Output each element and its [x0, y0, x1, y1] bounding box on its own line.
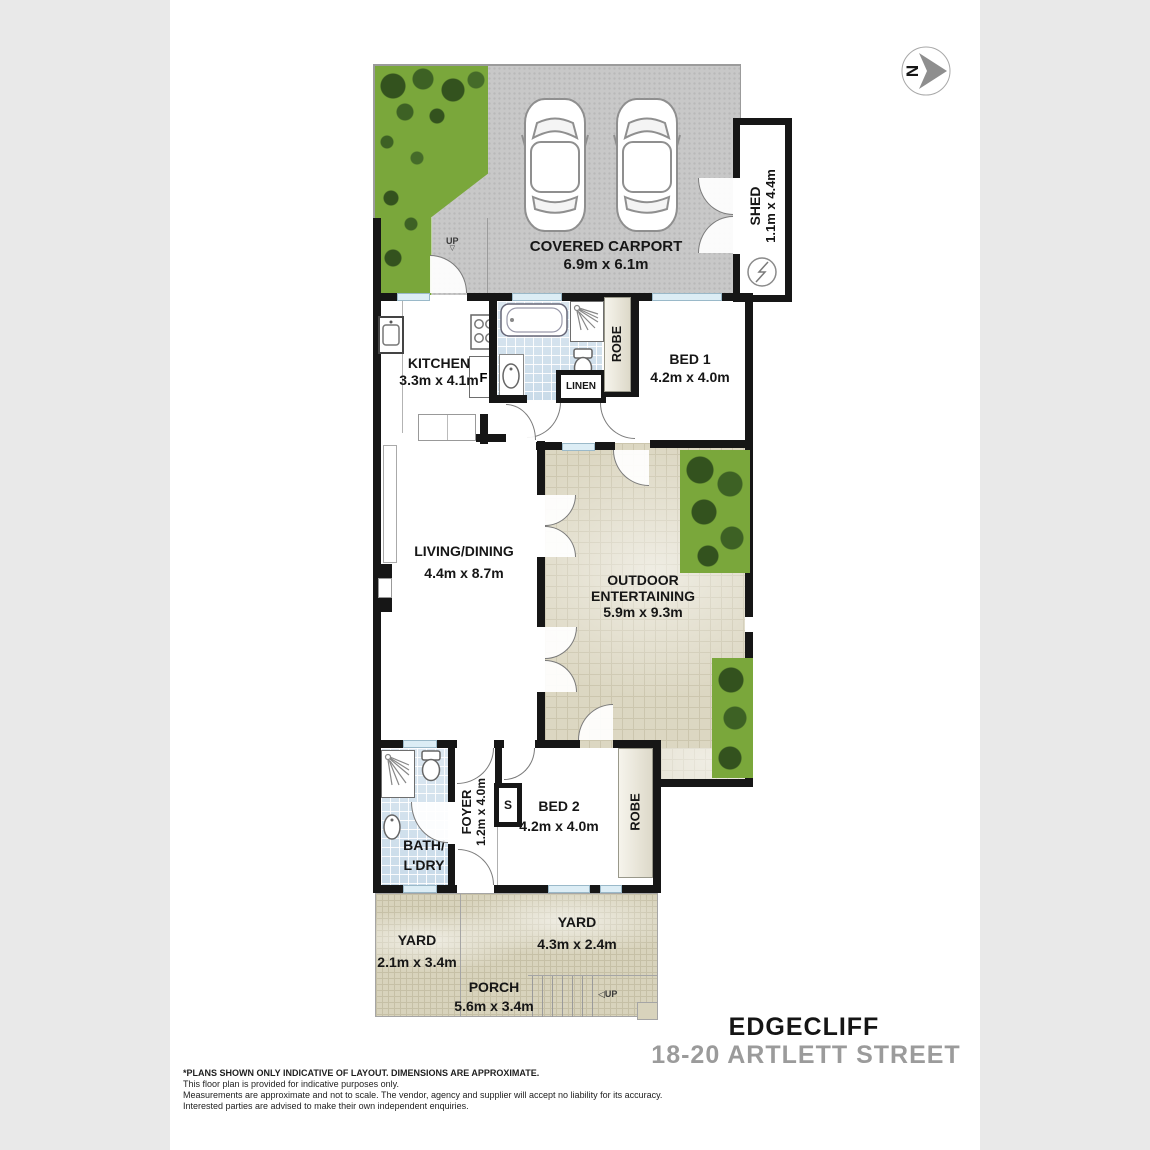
room-label-robe2: ROBE — [628, 793, 643, 831]
room-label-outdoor: OUTDOOR ENTERTAINING 5.9m x 9.3m — [591, 572, 695, 620]
meter-icon — [746, 256, 778, 288]
wall-segment — [537, 692, 545, 743]
builtin-cupboard — [383, 445, 397, 563]
wall-segment — [448, 748, 455, 802]
room-dims: 6.9m x 6.1m — [530, 256, 683, 274]
room-label-bed2: BED 2 4.2m x 4.0m — [519, 796, 598, 836]
shed-door-opening — [733, 178, 740, 254]
room-label-foyer: FOYER 1.2m x 4.0m — [459, 778, 489, 846]
shower-icon — [381, 750, 415, 798]
room-label-living: LIVING/DINING 4.4m x 8.7m — [414, 540, 514, 584]
wall-segment — [590, 885, 600, 893]
wall-segment — [622, 885, 661, 893]
room-label-bed1: BED 1 4.2m x 4.0m — [650, 350, 729, 386]
room-label-yard-left: YARD 2.1m x 3.4m — [377, 929, 456, 973]
room-name: SHED — [747, 169, 763, 243]
store-label: S — [504, 798, 512, 812]
window — [600, 885, 622, 893]
basin-icon — [382, 812, 402, 842]
wall-segment — [631, 293, 639, 397]
disclaimer-line: Measurements are approximate and not to … — [183, 1090, 662, 1101]
wall-bed1-south — [650, 440, 745, 448]
up-marker-carport: UP ▽ — [446, 236, 459, 252]
stair-tread — [582, 976, 583, 1017]
wall-segment — [373, 740, 403, 748]
disclaimer-line: Interested parties are advised to make t… — [183, 1101, 662, 1112]
store-closet: S — [494, 783, 522, 827]
room-label-kitchen: KITCHEN 3.3m x 4.1m — [399, 355, 478, 389]
bathtub-icon — [500, 303, 568, 337]
room-name: COVERED CARPORT — [530, 238, 683, 256]
window — [403, 740, 437, 748]
linen-label: LINEN — [566, 381, 596, 392]
down-arrow-icon: ▽ — [446, 246, 459, 252]
room-label-robe1: ROBE — [610, 326, 624, 362]
stair-tread — [562, 976, 563, 1017]
linen-closet: LINEN — [556, 370, 606, 403]
left-arrow-icon: ◁ — [598, 989, 605, 999]
wall-segment — [437, 740, 457, 748]
room-dims: 4.2m x 4.0m — [650, 368, 729, 386]
north-letter: N — [903, 65, 922, 77]
stair-tread — [552, 976, 553, 1017]
path-line — [487, 218, 488, 294]
wall-segment — [613, 740, 661, 748]
wall-segment — [535, 740, 580, 748]
room-name: OUTDOOR — [591, 572, 695, 588]
fireplace-wall — [376, 598, 392, 612]
room-name: BED 1 — [650, 350, 729, 368]
room-name: L'DRY — [403, 855, 445, 875]
outdoor-grass — [712, 658, 753, 778]
counter-line — [447, 415, 448, 440]
stair-tread — [572, 976, 573, 1017]
window — [397, 293, 430, 301]
room-name: FOYER — [459, 778, 474, 846]
room-dims: 3.3m x 4.1m — [399, 372, 478, 389]
wall-segment — [437, 885, 457, 893]
up-marker-porch: ◁UP — [598, 989, 617, 1000]
disclaimer-line: *PLANS SHOWN ONLY INDICATIVE OF LAYOUT. … — [183, 1068, 662, 1079]
room-dims: 1.2m x 4.0m — [474, 778, 489, 846]
room-name: PORCH — [454, 978, 533, 997]
window — [548, 885, 590, 893]
room-dims: 1.1m x 4.4m — [763, 169, 779, 243]
room-dims: 5.6m x 3.4m — [454, 997, 533, 1016]
basin-icon — [501, 361, 521, 391]
wall-segment — [494, 885, 548, 893]
disclaimer-block: *PLANS SHOWN ONLY INDICATIVE OF LAYOUT. … — [183, 1068, 662, 1112]
outdoor-grass — [680, 450, 750, 573]
stair-edge — [528, 975, 658, 976]
wall-segment — [497, 395, 527, 403]
shower-icon — [570, 301, 604, 342]
room-dims: 2.1m x 3.4m — [377, 951, 456, 973]
window — [403, 885, 437, 893]
kitchen-sink-icon — [378, 316, 404, 354]
north-compass-icon: N — [899, 44, 953, 98]
room-dims: 4.2m x 4.0m — [519, 816, 598, 836]
window — [652, 293, 722, 301]
wall-segment — [537, 441, 545, 495]
fireplace-wall — [376, 564, 392, 578]
wall-segment — [373, 293, 397, 301]
floor-line — [497, 827, 498, 885]
fridge-label: F — [480, 370, 488, 385]
room-name: ENTERTAINING — [591, 588, 695, 604]
wall-segment — [595, 442, 615, 450]
wall-segment — [373, 885, 403, 893]
wall-segment — [476, 434, 506, 442]
room-label-carport: COVERED CARPORT 6.9m x 6.1m — [530, 238, 683, 274]
wall-segment — [653, 740, 661, 893]
disclaimer-line: This floor plan is provided for indicati… — [183, 1079, 662, 1090]
toilet-icon — [420, 750, 442, 782]
room-label-porch: PORCH 5.6m x 3.4m — [454, 978, 533, 1016]
floorplan-page: COVERED CARPORT 6.9m x 6.1m UP ▽ SHED 1.… — [0, 0, 1150, 1150]
room-name: KITCHEN — [399, 355, 478, 372]
wall-kitchen-bath — [489, 293, 497, 403]
room-label-yard-right: YARD 4.3m x 2.4m — [537, 911, 616, 955]
wall-outdoor-south — [653, 779, 753, 787]
title-suburb: EDGECLIFF — [729, 1013, 880, 1042]
fireplace — [378, 578, 392, 598]
title-street: 18-20 ARTLETT STREET — [651, 1041, 960, 1070]
car-icon — [520, 96, 590, 234]
wall-segment — [722, 293, 745, 301]
window — [512, 293, 562, 301]
room-dims: 4.4m x 8.7m — [414, 562, 514, 584]
room-name: LIVING/DINING — [414, 540, 514, 562]
stair-tread — [542, 976, 543, 1017]
room-name: YARD — [377, 929, 456, 951]
porch-step — [637, 1002, 658, 1020]
wall-segment — [495, 740, 502, 785]
wall-segment — [537, 557, 545, 627]
room-name: BED 2 — [519, 796, 598, 816]
room-dims: 4.3m x 2.4m — [537, 933, 616, 955]
room-label-shed: SHED 1.1m x 4.4m — [747, 169, 779, 243]
car-icon — [612, 96, 682, 234]
stair-tread — [592, 976, 593, 1017]
room-dims: 5.9m x 9.3m — [591, 604, 695, 620]
room-name: YARD — [537, 911, 616, 933]
window — [562, 443, 595, 451]
